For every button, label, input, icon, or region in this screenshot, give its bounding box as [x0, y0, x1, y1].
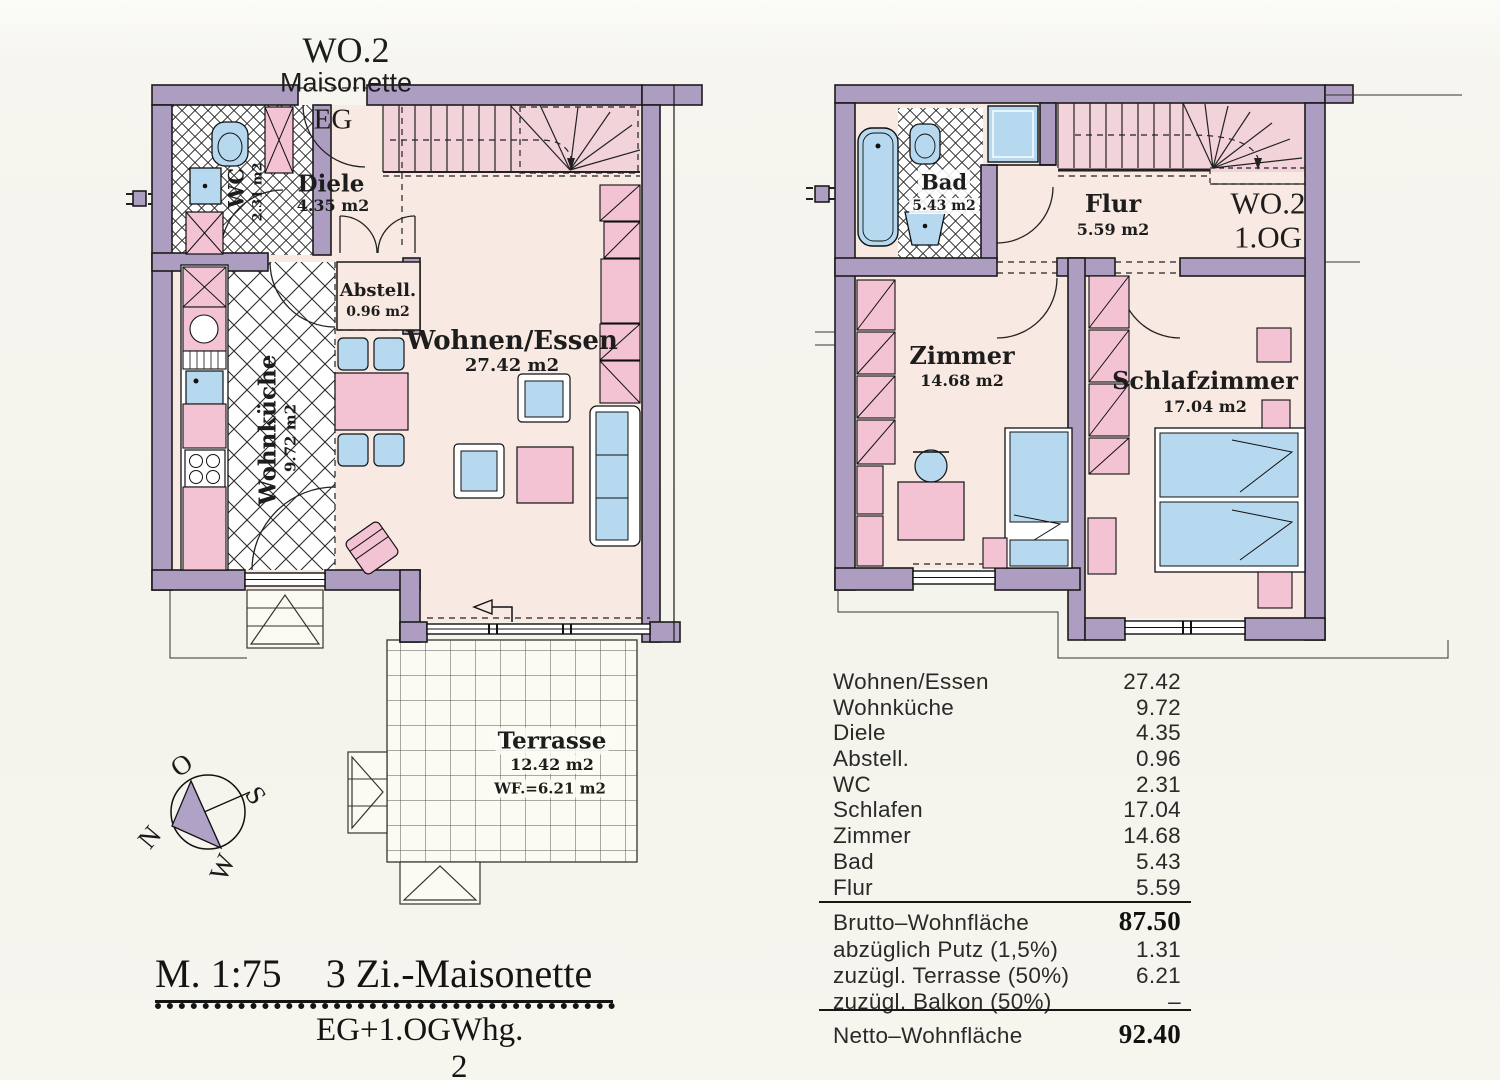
og-bad-sink [905, 212, 945, 245]
eg-exterior-line [170, 590, 247, 658]
eg-utility-connection [126, 191, 152, 206]
og-unit-label: WO.2 [1231, 188, 1306, 219]
row-label: Zimmer [833, 823, 911, 849]
og-desk [898, 482, 964, 540]
room-area-bad: 5.43 m2 [909, 198, 979, 214]
og-utility-connection [806, 186, 835, 202]
row-label: WC [833, 772, 871, 798]
caption-title: 3 Zi.-Maisonette [326, 950, 593, 997]
room-label-wc: WC [226, 168, 247, 208]
table-row: abzüglich Putz (1,5%)1.31 [833, 937, 1181, 963]
room-area-terrasse: 12.42 m2 [508, 755, 596, 774]
table-row: Flur5.59 [833, 875, 1181, 901]
row-value: 87.50 [1119, 906, 1181, 937]
row-value: 6.21 [1136, 963, 1181, 989]
table-row: WC2.31 [833, 772, 1181, 798]
row-label: Brutto–Wohnfläche [833, 910, 1029, 936]
table-row: Schlafen17.04 [833, 797, 1181, 823]
eg-floor-label: EG [314, 106, 353, 135]
room-wf-terrasse: WF.=6.21 m2 [492, 780, 608, 798]
row-value: 5.59 [1136, 875, 1181, 901]
row-value: 2.31 [1136, 772, 1181, 798]
row-label: Diele [833, 720, 886, 746]
room-area-schlafzimmer: 17.04 m2 [1163, 399, 1247, 415]
table-row: Diele4.35 [833, 720, 1181, 746]
row-value: 9.72 [1136, 695, 1181, 721]
eg-diele-wardrobe [265, 107, 293, 173]
row-label: abzüglich Putz (1,5%) [833, 937, 1058, 963]
row-label: Flur [833, 875, 873, 901]
eg-plan [126, 85, 702, 904]
eg-toilet [212, 122, 248, 166]
row-value: 4.35 [1136, 720, 1181, 746]
caption-line1: M. 1:75 3 Zi.-Maisonette [155, 950, 613, 1003]
caption-line2: EG+1.OG Whg. 2 [316, 1012, 548, 1080]
room-label-wohnen-essen: Wohnen/Essen [406, 328, 618, 354]
row-value: 92.40 [1119, 1019, 1181, 1050]
room-label-bad: Bad [918, 170, 970, 195]
sheet-title-unit: WO.2 [303, 32, 390, 68]
eg-entry-steps [247, 590, 323, 648]
room-label-zimmer: Zimmer [909, 344, 1014, 368]
sheet-title-type: Maisonette [280, 70, 412, 97]
table-rule-top [819, 901, 1191, 903]
table-row: zuzügl. Balkon (50%)– [833, 989, 1181, 1015]
room-label-terrasse: Terrasse [496, 728, 609, 755]
row-label: zuzügl. Balkon (50%) [833, 989, 1052, 1015]
room-area-zimmer: 14.68 m2 [920, 373, 1004, 389]
compass-rose [171, 775, 250, 849]
table-rule-bottom [819, 1009, 1191, 1011]
room-area-flur: 5.59 m2 [1077, 222, 1150, 238]
room-area-abstell: 0.96 m2 [346, 305, 410, 319]
room-label-abstell: Abstell. [340, 282, 416, 300]
room-label-flur: Flur [1085, 192, 1141, 216]
table-row: zuzügl. Terrasse (50%)6.21 [833, 963, 1181, 989]
row-label: Netto–Wohnfläche [833, 1023, 1023, 1049]
row-label: Bad [833, 849, 874, 875]
eg-coffee-table [517, 447, 573, 503]
row-value: 0.96 [1136, 746, 1181, 772]
room-area-wohnen-essen: 27.42 m2 [465, 357, 559, 375]
table-row: Abstell.0.96 [833, 746, 1181, 772]
row-value: 5.43 [1136, 849, 1181, 875]
room-area-wohnkueche: 9.72 m2 [284, 404, 299, 472]
compass-needle [172, 781, 221, 848]
table-row: Wohnen/Essen27.42 [833, 669, 1181, 695]
eg-wall-wardrobes [600, 185, 640, 403]
room-label-diele: Diele [298, 173, 365, 196]
room-label-wohnkueche: Wohnküche [257, 355, 280, 506]
table-row-brutto: Brutto–Wohnfläche87.50 [833, 906, 1181, 937]
room-label-schlafzimmer: Schlafzimmer [1112, 369, 1298, 393]
row-value: 17.04 [1123, 797, 1181, 823]
room-area-diele: 4.35 m2 [297, 198, 370, 214]
row-value: 27.42 [1123, 669, 1181, 695]
og-floor-label: 1.OG [1234, 222, 1302, 253]
caption-scale: M. 1:75 [155, 950, 282, 997]
room-area-wc: 2.31 m2 [252, 163, 265, 222]
row-value: – [1168, 989, 1181, 1015]
floorplan-drawing [0, 0, 1500, 1080]
caption-unit: Whg. 2 [451, 1012, 548, 1080]
area-table: Wohnen/Essen27.42 Wohnküche9.72 Diele4.3… [833, 669, 1181, 1050]
row-label: Wohnen/Essen [833, 669, 989, 695]
row-label: Schlafen [833, 797, 923, 823]
og-shower [988, 106, 1038, 162]
eg-kitchen-sink [186, 371, 223, 404]
table-row-netto: Netto–Wohnfläche92.40 [833, 1019, 1181, 1050]
eg-kitchen-counter [181, 265, 228, 570]
row-value: 14.68 [1123, 823, 1181, 849]
og-desk-chair [915, 450, 947, 482]
row-label: zuzügl. Terrasse (50%) [833, 963, 1069, 989]
table-row: Bad5.43 [833, 849, 1181, 875]
caption-dotted-rule [155, 1003, 615, 1009]
floorplan-sheet: WO.2 Maisonette EG Diele 4.35 m2 WC 2.31… [0, 0, 1500, 1080]
caption-floors: EG+1.OG [316, 1012, 451, 1080]
table-row: Zimmer14.68 [833, 823, 1181, 849]
table-row: Wohnküche9.72 [833, 695, 1181, 721]
row-label: Abstell. [833, 746, 909, 772]
row-label: Wohnküche [833, 695, 954, 721]
row-value: 1.31 [1136, 937, 1181, 963]
